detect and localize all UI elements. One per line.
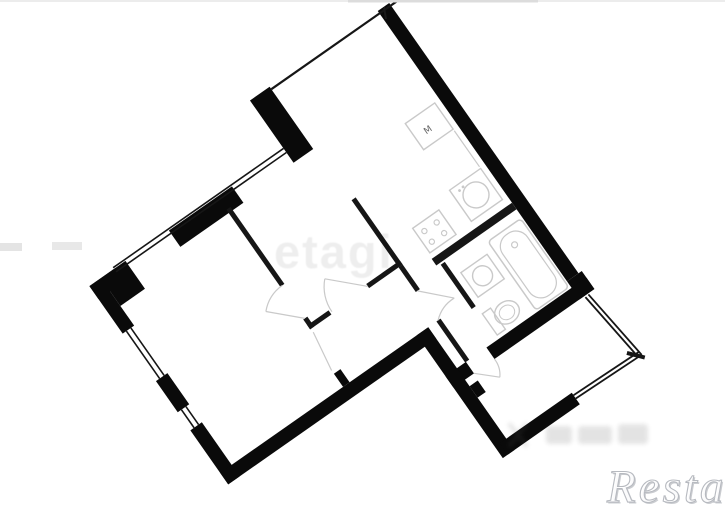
wall-jog [250,87,313,163]
smudge-blob [578,426,612,444]
smudge-blob [546,426,572,444]
balcony-railing [574,350,640,397]
door-arc [314,279,342,312]
floorplan-scan: M etagi Restate [0,0,725,510]
scan-artifact [348,0,538,3]
wall-right [378,3,579,281]
door-arc [259,286,289,312]
partition-wall [399,265,420,292]
wall-bottom [220,327,436,484]
toilet-icon [490,296,524,329]
window-glazing [126,331,159,379]
window-glazing [186,407,199,425]
washbasin-icon [461,254,504,297]
watermark-etagi: etagi [274,224,394,279]
window-glazing [181,410,194,428]
door-leaf [266,295,305,334]
balcony-railing [588,289,641,360]
watermark-smudge [508,416,678,456]
balcony-railing [576,353,642,400]
door-arc [490,359,505,377]
wall [486,278,594,359]
scan-artifact [52,242,82,250]
kitchen-sink-icon [458,177,494,213]
loggia-glazing [271,0,399,89]
tap-dot [458,189,462,193]
washbasin-icon [469,262,497,290]
smudge-blob [618,424,648,444]
burner-dot [433,219,440,226]
door-leaf [308,332,338,370]
scan-artifact [0,243,22,251]
appliance-label: M [422,124,434,137]
wall [156,373,189,412]
toilet-icon [496,302,517,323]
toilet-icon [482,308,505,335]
door-arc [433,298,459,320]
door-leaf [417,276,454,313]
partition-wall [307,310,331,329]
watermark-restate-logo: Restate [607,460,725,510]
drain-dot [510,241,518,249]
window-glazing [131,328,164,376]
burner-dot [428,238,435,245]
burner-dot [441,229,448,236]
burner-dot [421,227,428,234]
